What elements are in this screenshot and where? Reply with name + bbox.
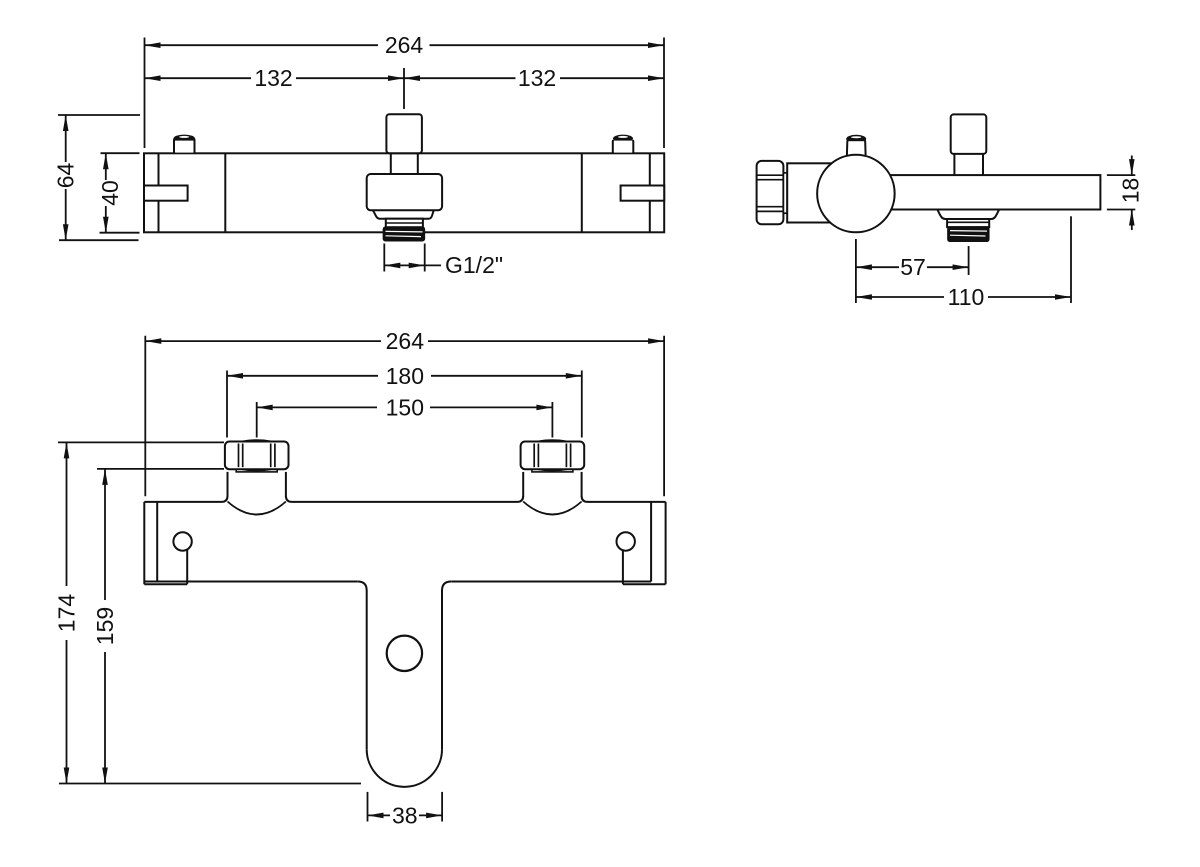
svg-text:264: 264 [386, 328, 425, 354]
svg-text:159: 159 [92, 607, 118, 645]
svg-text:174: 174 [54, 594, 80, 633]
svg-text:40: 40 [97, 180, 123, 206]
svg-text:150: 150 [386, 394, 424, 420]
svg-text:110: 110 [948, 284, 985, 310]
svg-text:57: 57 [900, 254, 926, 280]
svg-text:64: 64 [53, 163, 79, 189]
svg-text:264: 264 [385, 32, 424, 58]
svg-text:G1/2": G1/2" [445, 252, 503, 278]
svg-text:132: 132 [254, 65, 292, 91]
svg-text:180: 180 [386, 363, 424, 389]
svg-text:18: 18 [1118, 178, 1144, 204]
svg-text:132: 132 [518, 65, 556, 91]
svg-text:38: 38 [392, 802, 418, 828]
